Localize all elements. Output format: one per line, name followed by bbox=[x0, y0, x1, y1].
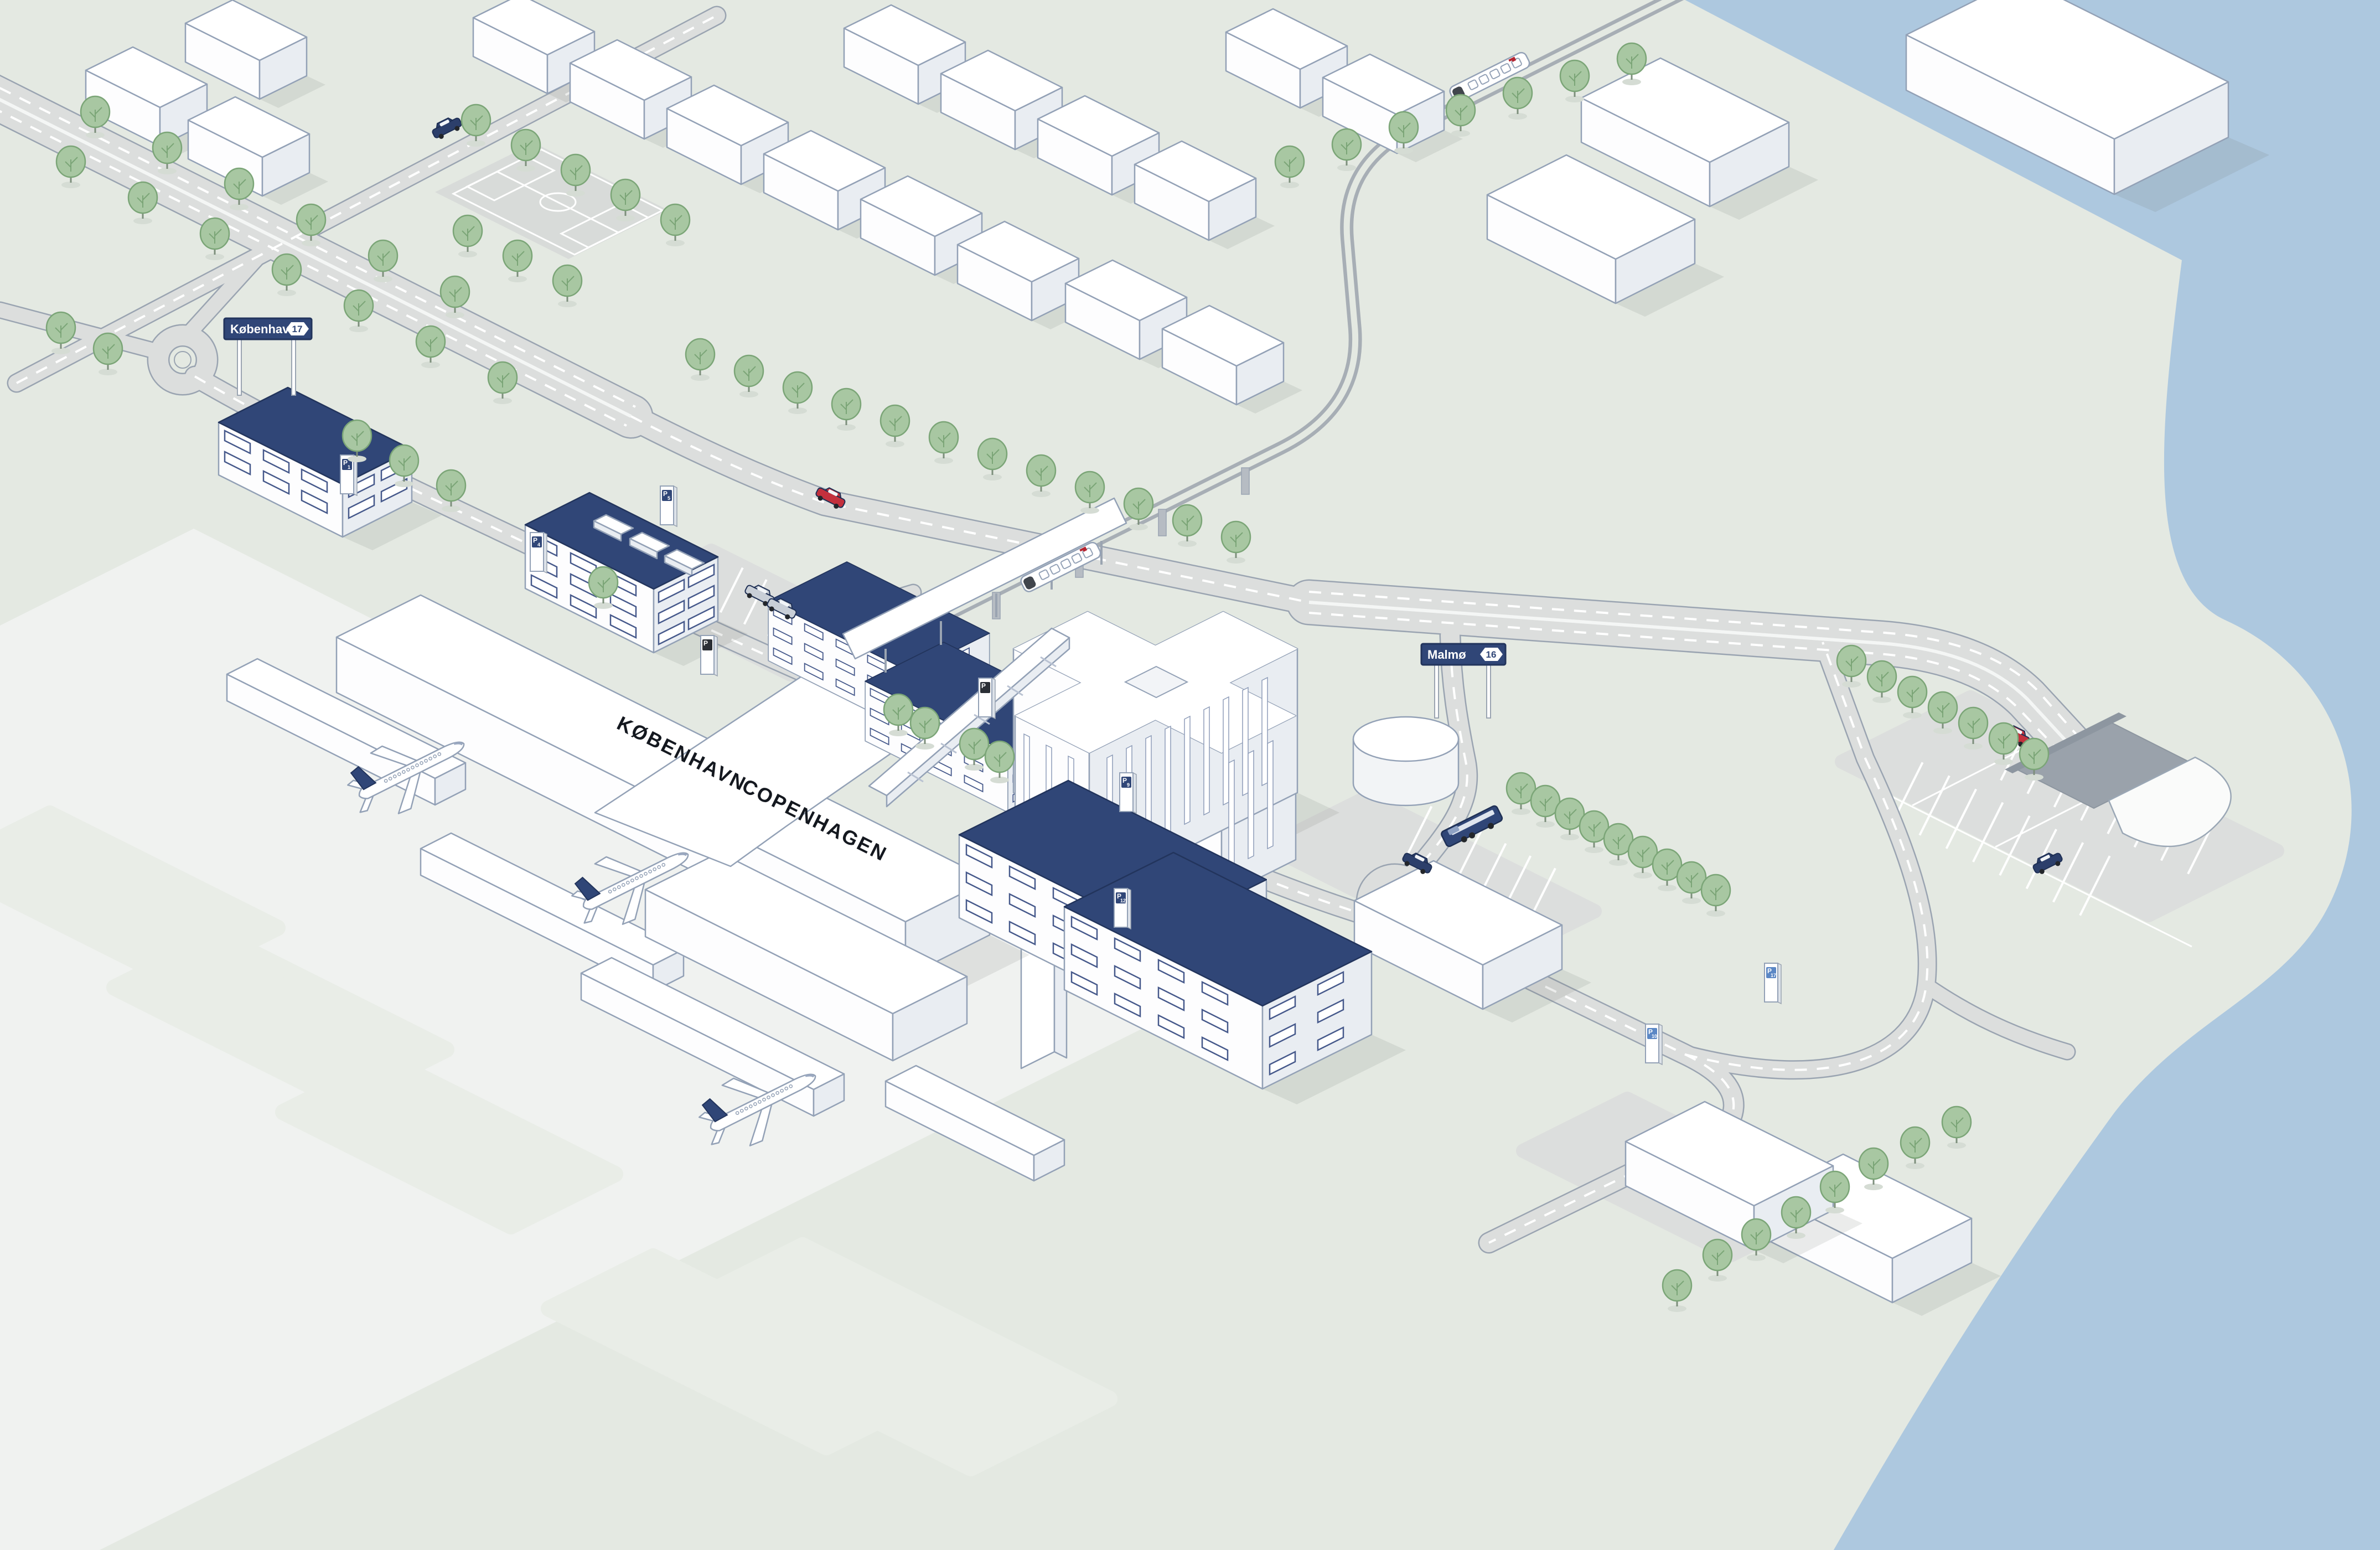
svg-text:P: P bbox=[1122, 777, 1127, 784]
svg-text:17: 17 bbox=[292, 324, 303, 334]
svg-text:P: P bbox=[981, 682, 986, 690]
info-pylon: P bbox=[701, 635, 717, 676]
svg-text:16: 16 bbox=[1486, 649, 1497, 660]
charging-pylon: P bbox=[979, 678, 995, 719]
svg-text:1: 1 bbox=[348, 464, 350, 470]
parking-pylon-p12: P12 bbox=[1114, 888, 1131, 929]
svg-text:9: 9 bbox=[1127, 782, 1130, 788]
parking-pylon-p10: P10 bbox=[1646, 1024, 1662, 1065]
parking-pylon-p17: P17 bbox=[1765, 963, 1781, 1004]
svg-text:4: 4 bbox=[537, 542, 540, 547]
parking-pylon-p4: P4 bbox=[530, 533, 547, 573]
svg-text:P: P bbox=[703, 639, 708, 647]
svg-text:P: P bbox=[343, 459, 348, 467]
svg-text:P: P bbox=[663, 490, 668, 498]
airport-map-illustration: KØBENHAVN COPENHAGEN København 17 Malmø … bbox=[0, 0, 2380, 1550]
svg-text:17: 17 bbox=[1771, 973, 1776, 978]
svg-text:P: P bbox=[533, 536, 537, 544]
svg-text:5: 5 bbox=[668, 495, 670, 501]
parking-pylon-p9: P9 bbox=[1120, 773, 1136, 813]
svg-text:Malmø: Malmø bbox=[1427, 648, 1466, 662]
parking-pylon-p5: P5 bbox=[660, 486, 677, 526]
svg-text:10: 10 bbox=[1652, 1034, 1657, 1039]
storage-tank bbox=[1353, 717, 1458, 805]
svg-text:12: 12 bbox=[1120, 898, 1126, 903]
